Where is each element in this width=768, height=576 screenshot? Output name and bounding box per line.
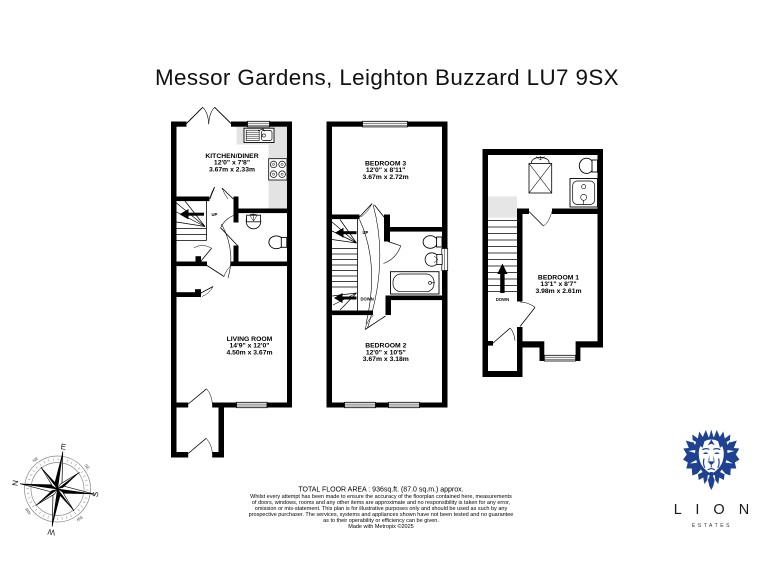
svg-text:DOWN: DOWN (496, 297, 509, 302)
svg-text:DOWN: DOWN (361, 297, 374, 302)
svg-text:UP: UP (212, 212, 218, 217)
svg-text:E: E (60, 442, 67, 452)
svg-text:3.67m x 3.18m: 3.67m x 3.18m (363, 356, 409, 363)
svg-text:W: W (47, 527, 56, 537)
svg-text:S: S (91, 491, 101, 498)
svg-text:3.98m x 2.61m: 3.98m x 2.61m (535, 288, 581, 295)
svg-text:Made with Metropix ©2025: Made with Metropix ©2025 (348, 523, 414, 530)
svg-text:3.67m x 2.72m: 3.67m x 2.72m (363, 174, 409, 181)
svg-text:N: N (11, 479, 21, 486)
svg-text:TOTAL FLOOR AREA : 936sq.ft. (: TOTAL FLOOR AREA : 936sq.ft. (87.0 sq.m.… (298, 487, 463, 494)
svg-text:3.67m x 2.33m: 3.67m x 2.33m (209, 166, 255, 173)
svg-text:L I O N: L I O N (674, 502, 754, 518)
svg-text:ESTATES: ESTATES (692, 523, 732, 529)
svg-text:Messor Gardens, Leighton Buzza: Messor Gardens, Leighton Buzzard LU7 9SX (155, 65, 619, 90)
svg-text:4.50m x 3.67m: 4.50m x 3.67m (226, 349, 272, 356)
